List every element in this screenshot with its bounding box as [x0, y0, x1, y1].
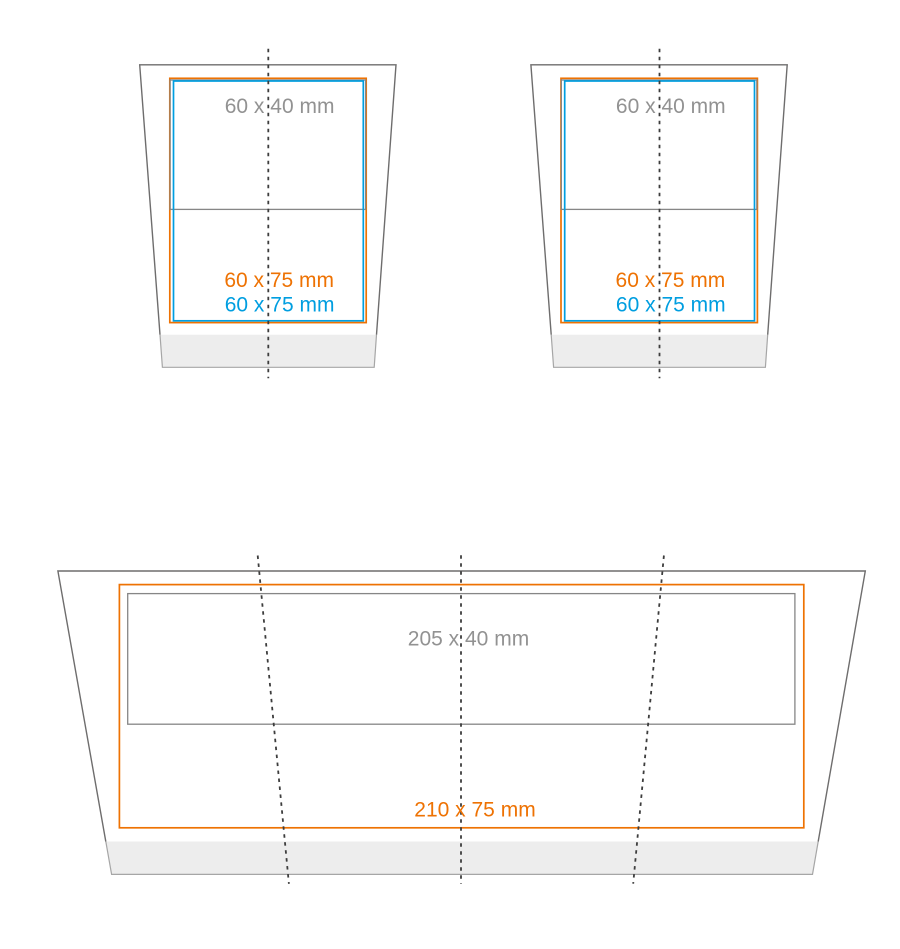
- svg-text:60 x 75 mm: 60 x 75 mm: [616, 294, 726, 317]
- svg-text:60 x 75 mm: 60 x 75 mm: [225, 294, 335, 317]
- svg-text:210 x 75 mm: 210 x 75 mm: [414, 799, 535, 822]
- svg-text:60 x 75 mm: 60 x 75 mm: [616, 269, 726, 292]
- svg-text:205 x 40 mm: 205 x 40 mm: [408, 627, 529, 650]
- svg-text:60 x 40 mm: 60 x 40 mm: [225, 95, 335, 118]
- svg-text:60 x 40 mm: 60 x 40 mm: [616, 95, 726, 118]
- svg-text:60 x 75 mm: 60 x 75 mm: [224, 269, 334, 292]
